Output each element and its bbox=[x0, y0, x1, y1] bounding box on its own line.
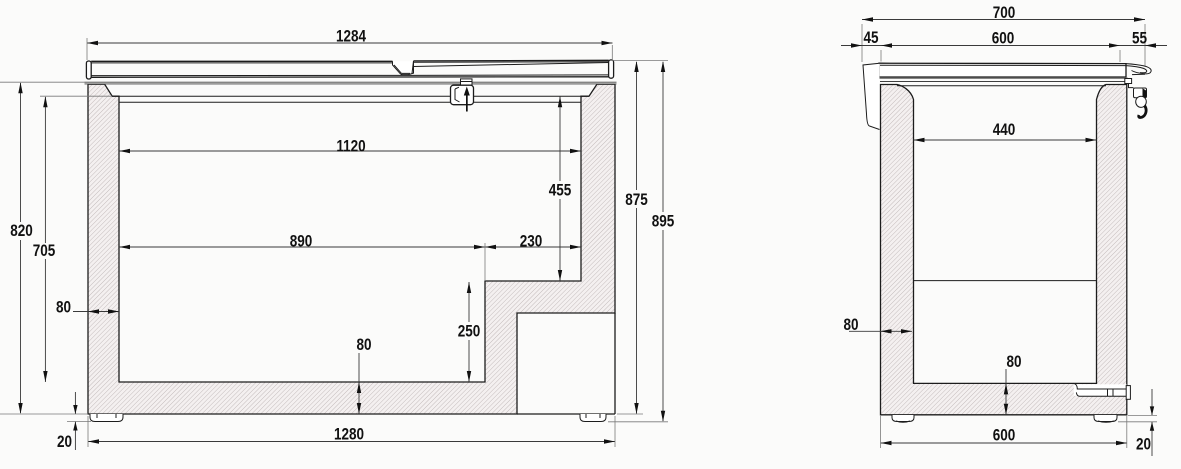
svg-text:895: 895 bbox=[652, 212, 675, 231]
svg-text:440: 440 bbox=[993, 121, 1016, 140]
svg-text:890: 890 bbox=[290, 232, 313, 251]
svg-text:230: 230 bbox=[520, 232, 543, 251]
svg-text:1280: 1280 bbox=[334, 425, 364, 444]
svg-text:1284: 1284 bbox=[336, 27, 367, 46]
svg-text:20: 20 bbox=[1136, 435, 1151, 454]
svg-text:45: 45 bbox=[863, 29, 878, 48]
svg-text:705: 705 bbox=[33, 242, 56, 261]
svg-text:600: 600 bbox=[992, 29, 1015, 48]
svg-text:455: 455 bbox=[549, 181, 572, 200]
svg-text:1120: 1120 bbox=[336, 137, 365, 156]
svg-text:80: 80 bbox=[1006, 353, 1021, 372]
svg-text:600: 600 bbox=[993, 426, 1016, 445]
svg-text:250: 250 bbox=[458, 322, 481, 341]
svg-text:20: 20 bbox=[57, 433, 72, 452]
svg-text:875: 875 bbox=[625, 191, 648, 210]
svg-text:700: 700 bbox=[993, 4, 1016, 23]
svg-text:80: 80 bbox=[356, 336, 371, 355]
svg-text:80: 80 bbox=[56, 298, 71, 317]
svg-text:820: 820 bbox=[10, 222, 33, 241]
svg-text:55: 55 bbox=[1132, 29, 1147, 48]
svg-text:80: 80 bbox=[843, 316, 858, 335]
